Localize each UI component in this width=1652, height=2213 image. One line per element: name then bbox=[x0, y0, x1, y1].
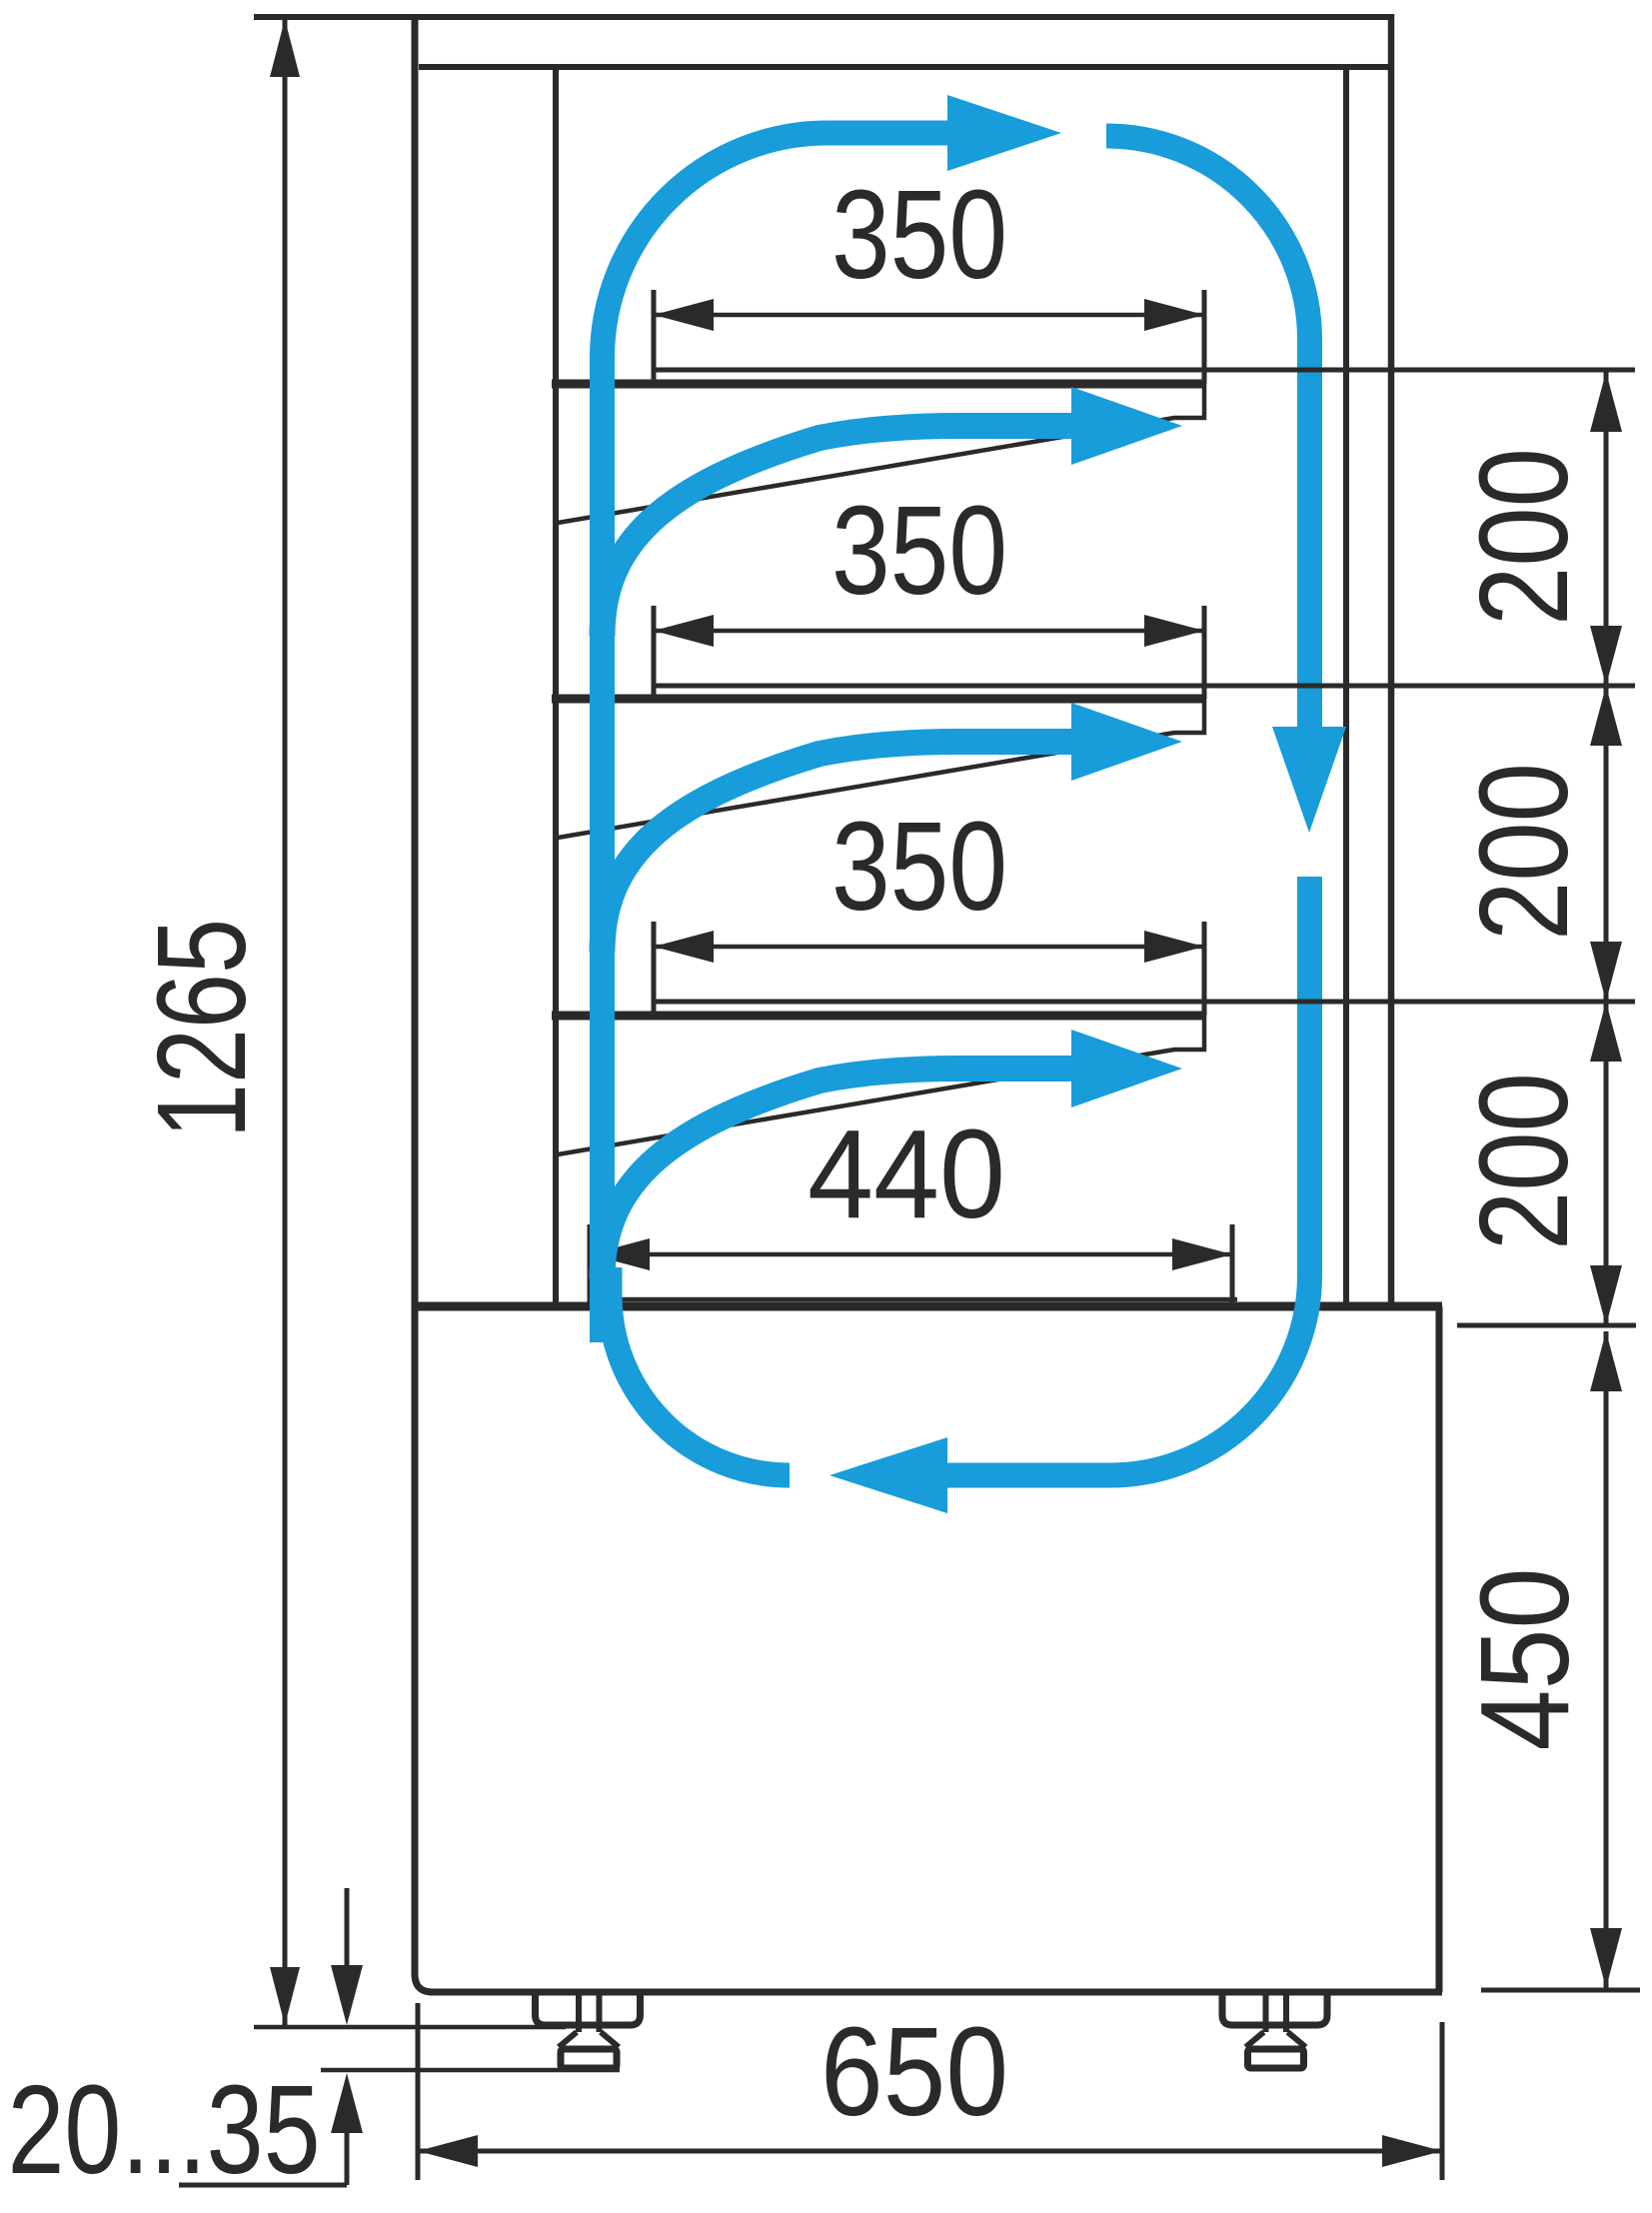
svg-text:440: 440 bbox=[808, 1104, 1005, 1244]
svg-text:450: 450 bbox=[1454, 1568, 1595, 1751]
svg-text:20...35: 20...35 bbox=[8, 2059, 321, 2200]
svg-text:650: 650 bbox=[821, 2001, 1008, 2142]
svg-text:200: 200 bbox=[1453, 763, 1594, 941]
svg-text:200: 200 bbox=[1453, 1073, 1594, 1250]
svg-text:200: 200 bbox=[1453, 448, 1594, 626]
svg-text:350: 350 bbox=[831, 796, 1007, 937]
svg-text:1265: 1265 bbox=[131, 919, 272, 1138]
svg-text:350: 350 bbox=[831, 480, 1007, 621]
svg-text:350: 350 bbox=[831, 164, 1007, 305]
